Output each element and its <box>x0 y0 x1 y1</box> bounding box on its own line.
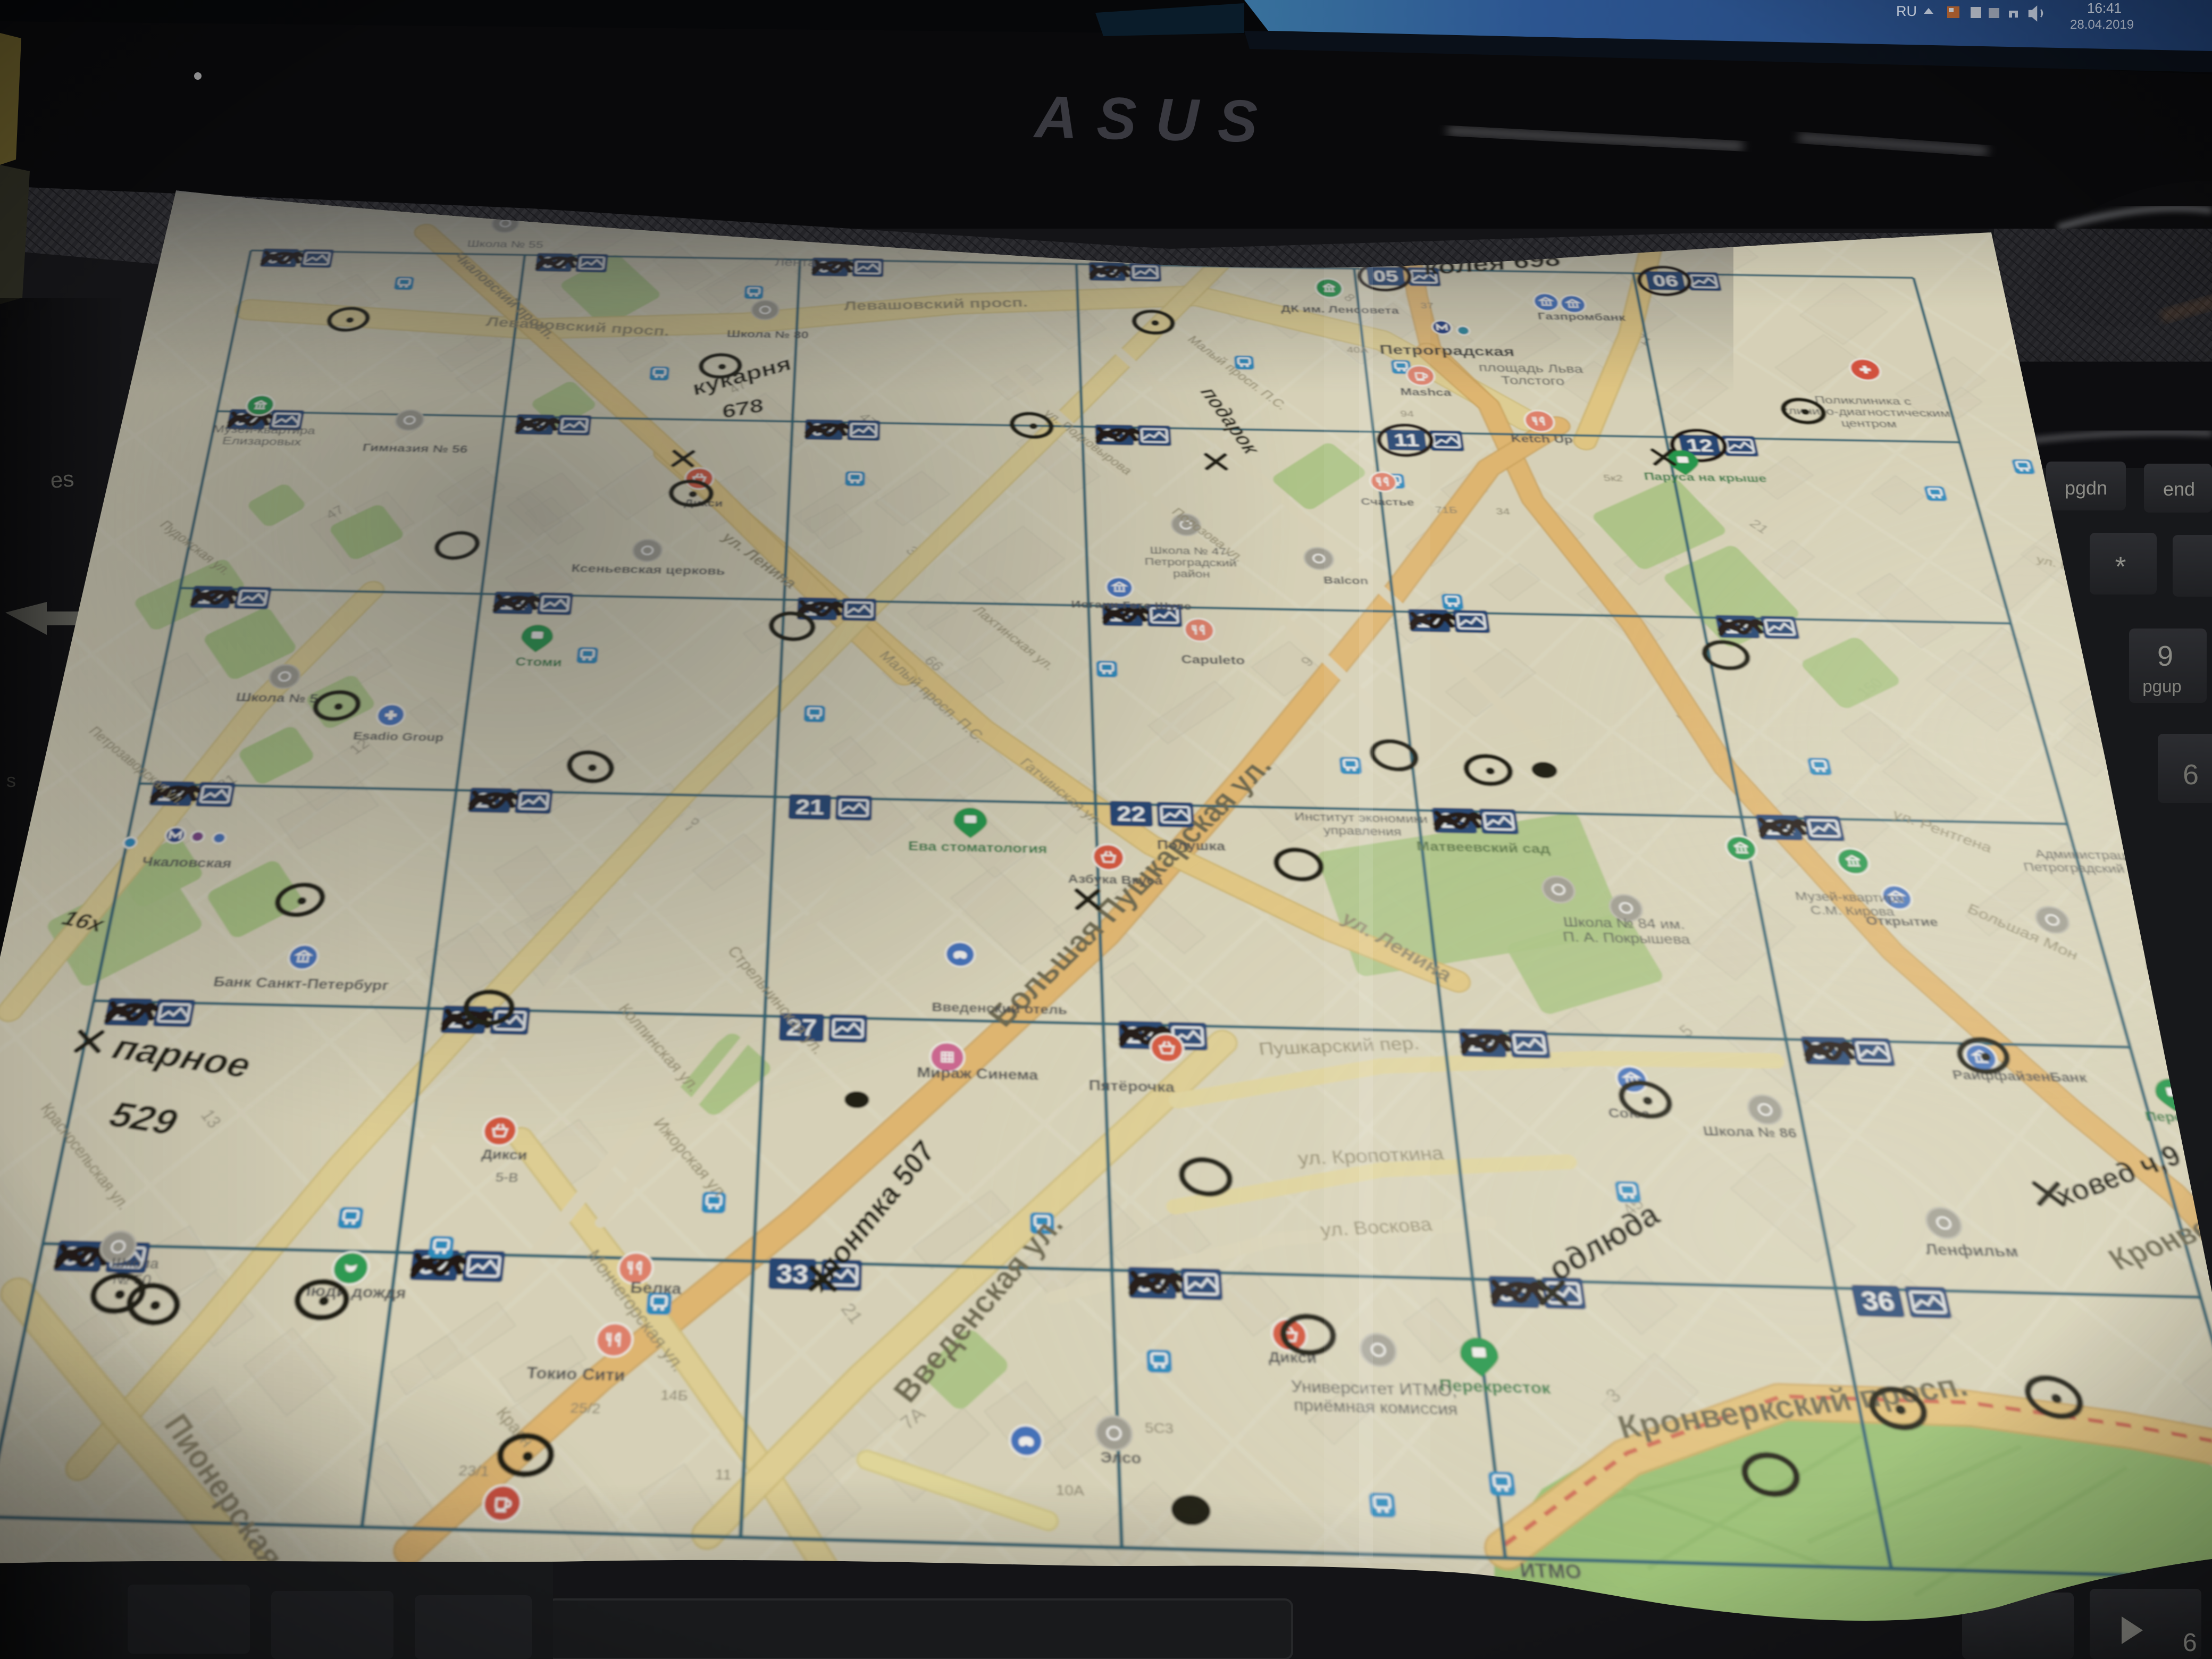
svg-text:5-В: 5-В <box>495 1169 519 1185</box>
svg-text:Полушка: Полушка <box>1157 838 1226 853</box>
svg-text:Матвеевский сад: Матвеевский сад <box>1416 840 1551 857</box>
svg-text:Петроградская: Петроградская <box>1379 342 1515 359</box>
svg-text:22: 22 <box>1117 802 1146 826</box>
svg-text:Пятёрочка: Пятёрочка <box>1088 1078 1175 1095</box>
svg-text:11: 11 <box>715 1465 732 1483</box>
svg-text:36: 36 <box>1859 1286 1898 1317</box>
svg-text:Чкаловская: Чкаловская <box>140 855 232 871</box>
svg-text:Дикси: Дикси <box>481 1147 528 1163</box>
svg-text:21: 21 <box>795 795 824 819</box>
svg-text:Ева стоматология: Ева стоматология <box>908 839 1048 856</box>
svg-text:Музей-квартираС.М. Кирова: Музей-квартираС.М. Кирова <box>1794 890 1908 919</box>
svg-text:Азбука Вкуса: Азбука Вкуса <box>1068 873 1163 887</box>
svg-text:71Б: 71Б <box>1434 504 1457 515</box>
svg-text:34: 34 <box>1495 506 1511 517</box>
svg-text:Паруса на крыше: Паруса на крыше <box>1643 471 1768 485</box>
svg-text:Перекресто: Перекресто <box>2143 1110 2212 1126</box>
svg-text:Музей-квартираЕлизаровых: Музей-квартираЕлизаровых <box>210 424 317 448</box>
svg-text:Capuleto: Capuleto <box>1181 653 1245 667</box>
svg-text:10А: 10А <box>1055 1481 1085 1499</box>
svg-text:25/2: 25/2 <box>569 1399 601 1417</box>
svg-text:Счастье: Счастье <box>1360 497 1415 508</box>
svg-text:14Б: 14Б <box>660 1386 688 1403</box>
svg-text:Esadio Group: Esadio Group <box>352 730 444 744</box>
svg-text:11: 11 <box>1393 431 1420 450</box>
svg-text:Газпромбанк: Газпромбанк <box>1537 311 1627 323</box>
svg-text:Mashca: Mashca <box>1400 387 1452 398</box>
svg-text:Корпу: Корпу <box>2048 460 2088 472</box>
svg-text:Элсо: Элсо <box>1100 1449 1142 1468</box>
svg-text:Мираж Синема: Мираж Синема <box>917 1065 1038 1084</box>
svg-text:ИТМО: ИТМО <box>1519 1560 1583 1584</box>
svg-text:Иоганн-Гете Шуле: Иоганн-Гете Шуле <box>1071 599 1192 613</box>
svg-text:23/1: 23/1 <box>458 1462 490 1480</box>
svg-text:Лента: Лента <box>774 257 817 269</box>
svg-text:Школа № 86: Школа № 86 <box>1702 1124 1798 1141</box>
svg-text:06: 06 <box>1651 272 1680 290</box>
svg-text:Школа № 84 им.П. А. Покрышева: Школа № 84 им.П. А. Покрышева <box>1560 915 1691 948</box>
svg-text:Белка: Белка <box>630 1279 682 1298</box>
svg-text:Balcon: Balcon <box>1323 575 1369 586</box>
svg-text:40А: 40А <box>1346 345 1369 355</box>
svg-text:Ketch Up: Ketch Up <box>1510 433 1574 446</box>
svg-text:5С3: 5С3 <box>1144 1419 1174 1437</box>
svg-text:05: 05 <box>1372 267 1400 285</box>
svg-text:37: 37 <box>1420 300 1434 310</box>
svg-text:Школа № 55: Школа № 55 <box>467 239 544 250</box>
svg-text:94: 94 <box>1400 408 1414 418</box>
svg-text:Ленфильм: Ленфильм <box>1923 1241 2020 1260</box>
svg-text:Школа № 5: Школа № 5 <box>235 691 319 705</box>
svg-text:Школа № 80: Школа № 80 <box>726 329 809 341</box>
svg-text:Гимназия № 56: Гимназия № 56 <box>362 442 468 456</box>
svg-text:Токио Сити: Токио Сити <box>526 1364 626 1385</box>
svg-text:5к2: 5к2 <box>1603 472 1624 483</box>
svg-text:Университет ИТМО,приёмная коми: Университет ИТМО,приёмная комиссия <box>1291 1378 1460 1419</box>
svg-text:ДК им. Ленсовета: ДК им. Ленсовета <box>1280 304 1400 316</box>
svg-text:Стоми: Стоми <box>515 656 563 669</box>
